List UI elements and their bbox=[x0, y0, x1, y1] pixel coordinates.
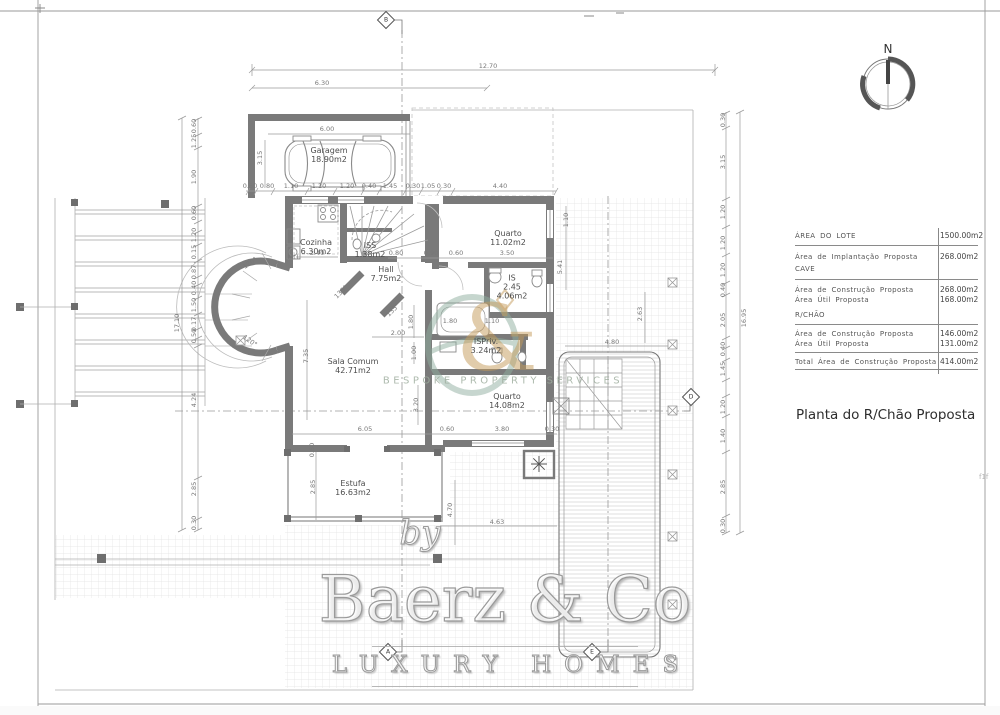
row-label: Área Útil Proposta bbox=[795, 296, 869, 304]
dimension-label: 17.10 bbox=[173, 314, 181, 333]
watermark-tagline: LUXURY HOMES bbox=[319, 652, 691, 678]
dimension-label: 0.80 bbox=[389, 249, 403, 257]
dimension-label: 1.90 bbox=[190, 170, 198, 184]
row-label: Total Área de Construção Proposta bbox=[795, 358, 937, 366]
dimension-label: 0.30 bbox=[719, 519, 727, 533]
table-subheader-cave: CAVE bbox=[795, 262, 978, 279]
dimension-label: 0.30 bbox=[190, 516, 198, 530]
room-label-line: 4.06m2 bbox=[497, 292, 528, 301]
dimension-label: 0.30 bbox=[545, 425, 559, 433]
row-label: Área de Implantação Proposta bbox=[795, 253, 918, 261]
row-value: 268.00m2 bbox=[940, 285, 978, 294]
dimension-label: 0.60 bbox=[440, 425, 454, 433]
dimension-label: 4.80 bbox=[605, 338, 619, 346]
dimension-label: 1.80 bbox=[407, 315, 415, 329]
dimension-label: 2.85 bbox=[190, 482, 198, 496]
table-row-total: Total Área de Construção Proposta 414.00… bbox=[795, 353, 978, 369]
pergola bbox=[20, 198, 205, 407]
dimension-label: 16.95 bbox=[740, 309, 748, 328]
room-label-line: ISPriv. bbox=[471, 337, 502, 346]
table-row-cave-util: Área Útil Proposta 168.00m2 bbox=[795, 294, 978, 304]
room-label-line: Estufa bbox=[335, 479, 371, 488]
dimension-label: 1.20 bbox=[719, 236, 727, 250]
dimension-label: 1.20 bbox=[719, 400, 727, 414]
room-label: IS2.454.06m2 bbox=[497, 274, 528, 301]
room-label-line: Cozinha bbox=[300, 238, 332, 247]
dimension-label: 4.40 bbox=[493, 182, 507, 190]
dimension-label: 1.20 bbox=[190, 228, 198, 242]
compass-n-label: N bbox=[884, 42, 893, 56]
room-label: Sala Comum42.71m2 bbox=[328, 357, 379, 375]
dimension-label: 0.87 bbox=[190, 265, 198, 279]
dimension-label: 2.85 bbox=[309, 480, 317, 494]
room-label: Quarto11.02m2 bbox=[490, 229, 526, 247]
edge-tag: f1f bbox=[979, 473, 988, 481]
dimension-label: 0.15 bbox=[190, 245, 198, 259]
room-label-line: ISS bbox=[355, 241, 386, 250]
section-marker-letter: D bbox=[686, 392, 697, 403]
dimension-label: 0.50 bbox=[308, 443, 316, 457]
row-label: Área de Construção Proposta bbox=[795, 330, 914, 338]
dimension-label: 1.00 bbox=[410, 346, 418, 360]
dimension-label: 1.40 bbox=[719, 429, 727, 443]
dimension-label: 3.20 bbox=[412, 398, 420, 412]
dimension-label: 6.30 bbox=[315, 79, 329, 87]
watermark-rule-top bbox=[372, 646, 638, 647]
dimension-label: 0.40 bbox=[190, 281, 198, 295]
room-label-line: 16.63m2 bbox=[335, 488, 371, 497]
room-label-line: 3.24m2 bbox=[471, 346, 502, 355]
dimension-label: 1.10 bbox=[485, 317, 499, 325]
room-label-line: 18.90m2 bbox=[310, 155, 347, 164]
dimension-label: 0.60 bbox=[190, 206, 198, 220]
room-label: ISS1.38m2 bbox=[355, 241, 386, 259]
bottom-strip bbox=[0, 706, 1000, 715]
dimension-label: 6.05 bbox=[358, 425, 372, 433]
row-value: 146.00m2 bbox=[940, 329, 978, 338]
dimension-label: 1.10 bbox=[562, 213, 570, 227]
dimension-label: 3.15 bbox=[256, 151, 264, 165]
table-row-implantacao: Área de Implantação Proposta 268.00m2 bbox=[795, 246, 978, 262]
room-label-line: Hall bbox=[371, 265, 402, 274]
dimension-label: 4.63 bbox=[490, 518, 504, 526]
dimension-label: 1.50 bbox=[190, 298, 198, 312]
dimension-label: 0.40 bbox=[719, 283, 727, 297]
room-label-line: 2.45 bbox=[497, 283, 528, 292]
dimension-label: 0.30 bbox=[719, 113, 727, 127]
row-value: 268.00m2 bbox=[940, 252, 978, 261]
dimension-label: 12.70 bbox=[479, 62, 498, 70]
room-label-line: 1.38m2 bbox=[355, 250, 386, 259]
dimension-label: 1.80 bbox=[443, 317, 457, 325]
room-label-line: 42.71m2 bbox=[328, 366, 379, 375]
row-value: 414.00m2 bbox=[940, 357, 978, 366]
dimension-label: 3.15 bbox=[719, 155, 727, 169]
dimension-label: 0.80 bbox=[260, 182, 274, 190]
dimension-label: 1.20 bbox=[719, 205, 727, 219]
table-row-rchao-util: Área Útil Proposta 131.00m2 bbox=[795, 338, 978, 352]
dimension-label: 6.00 bbox=[320, 125, 334, 133]
dimension-label: 1.10 bbox=[284, 182, 298, 190]
table-subheader-rchao: R/CHÃO bbox=[795, 304, 978, 324]
room-label: Quarto14.08m2 bbox=[489, 392, 525, 410]
dimension-label: 1.45 bbox=[383, 182, 397, 190]
dimension-label: 3.50 bbox=[500, 249, 514, 257]
dimension-label: 2.85 bbox=[719, 480, 727, 494]
watermark-brand: Baerz & Co bbox=[319, 563, 692, 637]
table-rule bbox=[795, 369, 978, 370]
table-row-rchao-construcao: Área de Construção Proposta 146.00m2 bbox=[795, 325, 978, 338]
room-label: ISPriv.3.24m2 bbox=[471, 337, 502, 355]
row-value: 168.00m2 bbox=[940, 295, 978, 304]
dimension-label: 4.70 bbox=[446, 503, 454, 517]
room-label-line: Quarto bbox=[489, 392, 525, 401]
room-label-line: Quarto bbox=[490, 229, 526, 238]
drawing-title: Planta do R/Chão Proposta bbox=[796, 407, 975, 423]
watermark-rule-bottom bbox=[372, 686, 638, 687]
row-value: 1500.00m2 bbox=[940, 231, 978, 240]
table-row-lote: ÁREA DO LOTE 1500.00m2 bbox=[795, 228, 978, 245]
row-label: Área de Construção Proposta bbox=[795, 286, 914, 294]
drawing-sheet: & BESPOKE PROPERTY SERVICES Garagem18.90… bbox=[0, 0, 1000, 715]
table-row-cave-construcao: Área de Construção Proposta 268.00m2 bbox=[795, 280, 978, 294]
dimension-label: 4.24 bbox=[190, 393, 198, 407]
room-label-line: 14.08m2 bbox=[489, 401, 525, 410]
pool-steps bbox=[566, 359, 622, 429]
dimension-label: 7.35 bbox=[302, 349, 310, 363]
room-label-line: Garagem bbox=[310, 146, 347, 155]
dimension-label: 2.00 bbox=[391, 329, 405, 337]
row-value: 131.00m2 bbox=[940, 339, 978, 348]
room-label: Garagem18.90m2 bbox=[310, 146, 347, 164]
room-label-line: Sala Comum bbox=[328, 357, 379, 366]
dimension-label: 1.05 bbox=[421, 182, 435, 190]
room-label-line: IS bbox=[497, 274, 528, 283]
dimension-label: 2.05 bbox=[719, 313, 727, 327]
dimension-label: 2.40 bbox=[310, 249, 324, 257]
dimension-label: 1.20 bbox=[719, 263, 727, 277]
dimension-label: 1.25 bbox=[190, 134, 198, 148]
dimension-label: MLL bbox=[288, 253, 301, 261]
dimension-label: 0.40 bbox=[362, 182, 376, 190]
dimension-label: 0.30 bbox=[437, 182, 451, 190]
row-label: Área Útil Proposta bbox=[795, 340, 869, 348]
dimension-label: 0.30 bbox=[406, 182, 420, 190]
dimension-label: 1.20 bbox=[340, 182, 354, 190]
dimension-label: 0.50 bbox=[243, 182, 257, 190]
dimension-label: 0.90 bbox=[424, 249, 438, 257]
dimension-label: 0.40 bbox=[719, 342, 727, 356]
watermark-by: by bbox=[400, 513, 441, 553]
section-marker-letter: B bbox=[381, 15, 392, 26]
dimension-label: 0.60 bbox=[449, 249, 463, 257]
dimension-label: 5.41 bbox=[556, 260, 564, 274]
dimension-label: 2.63 bbox=[636, 307, 644, 321]
dimension-label: 1.45 bbox=[719, 362, 727, 376]
area-info-table: ÁREA DO LOTE 1500.00m2 Área de Implantaç… bbox=[795, 228, 978, 370]
row-label: ÁREA DO LOTE bbox=[795, 232, 856, 240]
bespoke-text: BESPOKE PROPERTY SERVICES bbox=[383, 376, 623, 387]
table-divider bbox=[938, 228, 939, 374]
room-label-line: 7.75m2 bbox=[371, 274, 402, 283]
room-label: Estufa16.63m2 bbox=[335, 479, 371, 497]
room-label-line: 11.02m2 bbox=[490, 238, 526, 247]
dimension-label: 3.80 bbox=[495, 425, 509, 433]
dimension-label: 0.60 bbox=[190, 119, 198, 133]
room-label: Hall7.75m2 bbox=[371, 265, 402, 283]
dimension-label: 0.50 bbox=[190, 329, 198, 343]
dimension-label: 1.20 bbox=[312, 182, 326, 190]
north-compass bbox=[863, 59, 913, 109]
